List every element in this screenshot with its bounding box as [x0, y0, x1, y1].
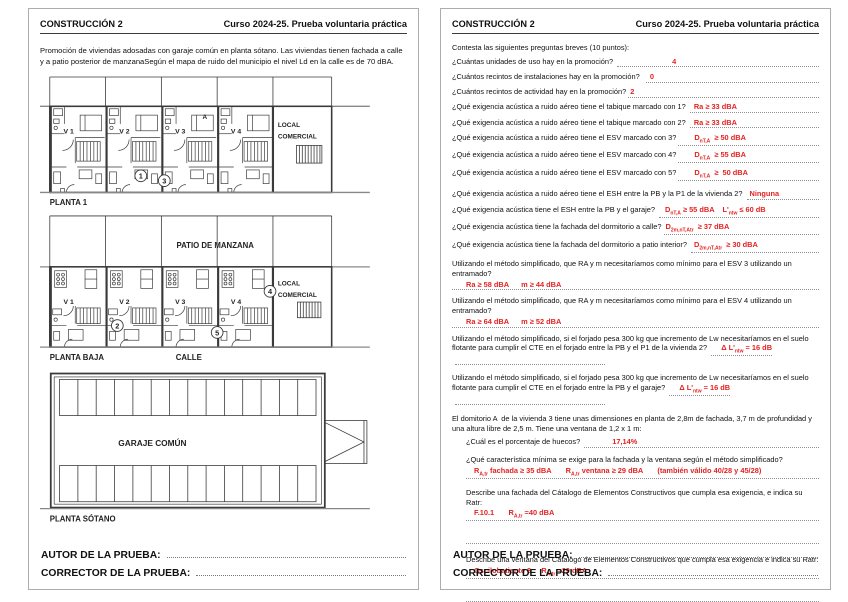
- marker-circle-4: 4: [264, 285, 276, 297]
- local-label-p1: LOCAL: [278, 122, 300, 129]
- dotted-answer-line: Ninguna: [747, 189, 819, 200]
- exam-page-plans: CONSTRUCCIÓN 2 Curso 2024-25. Prueba vol…: [28, 8, 419, 590]
- dotted-answer-line: RA,tr fachada ≥ 35 dBA RA,tr ventana ≥ 2…: [466, 466, 819, 479]
- marker-circle-1: 1: [135, 170, 147, 182]
- dotted-answer-line: Ra ≥ 33 dBA: [690, 102, 819, 113]
- page-header: CONSTRUCCIÓN 2 Curso 2024-25. Prueba vol…: [40, 19, 407, 34]
- corrector-row: CORRECTOR DE LA PRUEBA:: [41, 566, 406, 579]
- autor-row: AUTOR DE LA PRUEBA:: [453, 548, 818, 561]
- dotted-answer-line: Ra ≥ 64 dBA m ≥ 52 dBA: [452, 317, 819, 328]
- course-title: CONSTRUCCIÓN 2: [40, 19, 123, 29]
- dotted-answer-line: 0: [646, 72, 819, 83]
- question-item: Utilizando el método simplificado, que R…: [452, 259, 819, 290]
- unit-label-v2-pb: V 2: [119, 299, 129, 306]
- answer-text: Ra ≥ 58 dBA m ≥ 44 dBA: [452, 280, 561, 290]
- dotted-answer-line: 2: [628, 87, 819, 98]
- room-a-label: A: [202, 114, 207, 121]
- questions-list: ¿Cuántas unidades de uso hay en la promo…: [452, 57, 819, 602]
- question-text: Describe una fachada del Cátalogo de Ele…: [466, 488, 805, 507]
- question-text: ¿Qué exigencia acústica a ruido aéreo ti…: [452, 118, 688, 128]
- answer-text: Δ L'ntw = 16 dB: [669, 383, 730, 396]
- autor-blank-line: [167, 548, 406, 558]
- signature-footer-left: AUTOR DE LA PRUEBA: CORRECTOR DE LA PRUE…: [41, 543, 406, 579]
- question-text: ¿Cuántas unidades de uso hay en la promo…: [452, 57, 615, 67]
- svg-text:3: 3: [162, 176, 166, 185]
- question-text: ¿Qué exigencia acústica tiene el ESH ent…: [452, 205, 657, 215]
- question-item: ¿Qué exigencia acústica tiene la fachada…: [452, 240, 819, 253]
- question-item: ¿Qué exigencia acústica a ruido aéreo ti…: [452, 189, 819, 200]
- unit-label-v1-pb: V 1: [64, 299, 74, 306]
- dotted-answer-line: DnT,A ≥ 55 dBA L'ntw ≤ 60 dB: [659, 205, 819, 218]
- question-item: Describe una fachada del Cátalogo de Ele…: [466, 488, 819, 545]
- question-text: ¿Cuál es el porcentaje de huecos?: [466, 437, 582, 447]
- dotted-answer-line: [455, 356, 605, 365]
- unit-label-v3-pb: V 3: [175, 299, 185, 306]
- floor-plan-planta-baja: [40, 216, 370, 347]
- question-item: ¿Qué exigencia acústica a ruido aéreo ti…: [452, 150, 819, 163]
- question-text: ¿Qué exigencia acústica tiene la fachada…: [452, 222, 662, 232]
- plan-label-planta-baja: PLANTA BAJA: [50, 353, 105, 362]
- dotted-answer-line: D2m,nT,Atr ≥ 37 dBA: [664, 222, 819, 235]
- answer-text: Ra ≥ 33 dBA: [690, 102, 737, 112]
- question-item: ¿Cuál es el porcentaje de huecos? 17,14%: [466, 437, 819, 448]
- question-item: ¿Cuántos recintos de instalaciones hay e…: [452, 72, 819, 83]
- unit-label-v1-p1: V 1: [64, 129, 74, 136]
- dotted-answer-line: Ra ≥ 58 dBA m ≥ 44 dBA: [452, 280, 819, 291]
- question-text: Utilizando el método simplificado, que R…: [452, 296, 794, 315]
- question-item: ¿Qué exigencia acústica tiene el ESH ent…: [452, 205, 819, 218]
- answer-text: 4: [617, 57, 676, 67]
- plan-label-planta1: PLANTA 1: [50, 198, 88, 207]
- stairs-hatch-local1: [296, 145, 321, 163]
- intro-paragraph: Promoción de viviendas adosadas con gara…: [40, 46, 407, 67]
- unit-label-v2-p1: V 2: [119, 129, 129, 136]
- marker-circle-2: 2: [111, 320, 123, 332]
- calle-label: CALLE: [176, 353, 202, 362]
- unit-label-v3-p1: V 3: [175, 129, 185, 136]
- floor-plans-drawing: V 1 V 2 V 3 V 4 A LOCAL COMERCIAL 1 3 PL…: [40, 75, 409, 535]
- instructions-line: Contesta las siguientes preguntas breves…: [452, 43, 819, 52]
- autor-row: AUTOR DE LA PRUEBA:: [41, 548, 406, 561]
- dotted-answer-line: DnT,A ≥ 50 dBA: [678, 168, 819, 181]
- answer-text: DnT,A ≥ 50 dBA: [678, 168, 748, 180]
- question-text: Utilizando el método simplificado, que R…: [452, 259, 794, 278]
- parking-stalls-bottom: [60, 465, 316, 501]
- unit-label-v4-p1: V 4: [231, 129, 241, 136]
- question-item: ¿Qué exigencia acústica a ruido aéreo ti…: [452, 102, 819, 113]
- autor-label: AUTOR DE LA PRUEBA:: [453, 550, 573, 561]
- question-text: ¿Qué exigencia acústica a ruido aéreo ti…: [452, 102, 688, 112]
- dotted-answer-line: 17,14%: [584, 437, 819, 448]
- stairs-hatch-local-baja: [297, 302, 320, 318]
- parking-stalls-top: [60, 379, 316, 415]
- question-item: ¿Qué característica mínima se exige para…: [466, 455, 819, 479]
- answer-text: 17,14%: [584, 437, 637, 447]
- svg-text:1: 1: [139, 172, 143, 181]
- question-text: ¿Cuántos recintos de instalaciones hay e…: [452, 72, 644, 82]
- question-text: ¿Qué exigencia acústica tiene la fachada…: [452, 240, 689, 250]
- question-text: ¿Qué exigencia acústica a ruido aéreo ti…: [452, 133, 676, 143]
- answer-text: D2m,nT,Atr ≥ 37 dBA: [664, 222, 730, 234]
- answer-text: D2m,nT,Atr ≥ 30 dBA: [691, 240, 758, 252]
- answer-text: Ninguna: [747, 189, 780, 199]
- svg-text:2: 2: [115, 321, 119, 330]
- question-item: Utilizando el método simplificado, si el…: [452, 334, 819, 369]
- answer-text: RA,tr fachada ≥ 35 dBA RA,tr ventana ≥ 2…: [466, 466, 761, 478]
- question-item: Utilizando el método simplificado, si el…: [452, 373, 819, 408]
- dotted-answer-line: D2m,nT,Atr ≥ 30 dBA: [691, 240, 819, 253]
- question-item: ¿Qué exigencia acústica a ruido aéreo ti…: [452, 118, 819, 129]
- corrector-blank-line: [196, 566, 406, 576]
- garage-label: GARAJE COMÚN: [118, 437, 186, 448]
- question-item: El domitorio A de la vivienda 3 tiene un…: [452, 414, 819, 434]
- marker-circle-3: 3: [158, 175, 170, 187]
- floor-plan-planta1: [40, 77, 370, 192]
- patio-label: PATIO DE MANZANA: [176, 241, 254, 250]
- answer-text: F.10.1 RA,tr =40 dBA: [466, 508, 554, 520]
- dotted-answer-line: Ra ≥ 33 dBA: [690, 118, 819, 129]
- question-text: ¿Cuántos recintos de actividad hay en la…: [452, 87, 626, 97]
- dotted-blank-line: [466, 592, 819, 602]
- course-term: Curso 2024-25. Prueba voluntaria práctic…: [224, 19, 407, 29]
- course-term: Curso 2024-25. Prueba voluntaria práctic…: [636, 19, 819, 29]
- question-text: ¿Qué exigencia acústica a ruido aéreo ti…: [452, 189, 745, 199]
- corrector-label: CORRECTOR DE LA PRUEBA:: [41, 568, 190, 579]
- answer-text: Δ L'ntw = 16 dB: [711, 343, 772, 356]
- dotted-answer-line: DnT,A ≥ 50 dBA: [678, 133, 819, 146]
- unit-label-v4-pb: V 4: [231, 299, 241, 306]
- answer-text: DnT,A ≥ 50 dBA: [678, 133, 746, 145]
- answer-text: DnT,A ≥ 55 dBA: [678, 150, 746, 162]
- autor-blank-line: [579, 548, 818, 558]
- page-header: CONSTRUCCIÓN 2 Curso 2024-25. Prueba vol…: [452, 19, 819, 34]
- dotted-answer-line: [455, 396, 605, 405]
- answer-text: 2: [628, 87, 634, 97]
- dotted-answer-line: 4: [617, 57, 819, 68]
- question-text: Utilizando el método simplificado, si el…: [452, 373, 811, 392]
- question-item: ¿Cuántas unidades de uso hay en la promo…: [452, 57, 819, 68]
- floor-plan-sotano: [40, 373, 370, 508]
- dotted-answer-line: F.10.1 RA,tr =40 dBA: [466, 508, 819, 521]
- question-text: ¿Qué exigencia acústica a ruido aéreo ti…: [452, 150, 676, 160]
- dotted-answer-line: DnT,A ≥ 55 dBA: [678, 150, 819, 163]
- question-item: ¿Qué exigencia acústica a ruido aéreo ti…: [452, 133, 819, 146]
- marker-circle-5: 5: [211, 326, 223, 338]
- corrector-label: CORRECTOR DE LA PRUEBA:: [453, 568, 602, 579]
- exam-page-questions: CONSTRUCCIÓN 2 Curso 2024-25. Prueba vol…: [440, 8, 831, 590]
- question-item: ¿Qué exigencia acústica a ruido aéreo ti…: [452, 168, 819, 181]
- signature-footer-right: AUTOR DE LA PRUEBA: CORRECTOR DE LA PRUE…: [453, 543, 818, 579]
- answer-text: Ra ≥ 33 dBA: [690, 118, 737, 128]
- local-label-pb: LOCAL: [278, 280, 300, 287]
- local-label2-pb: COMERCIAL: [278, 292, 317, 299]
- question-item: ¿Cuántos recintos de actividad hay en la…: [452, 87, 819, 98]
- answer-text: 0: [646, 72, 654, 82]
- answer-text: Ra ≥ 64 dBA m ≥ 52 dBA: [452, 317, 561, 327]
- autor-label: AUTOR DE LA PRUEBA:: [41, 550, 161, 561]
- svg-text:5: 5: [215, 328, 219, 337]
- corrector-blank-line: [608, 566, 818, 576]
- question-text: ¿Qué exigencia acústica a ruido aéreo ti…: [452, 168, 676, 178]
- local-label2-p1: COMERCIAL: [278, 133, 317, 140]
- question-text: El domitorio A de la vivienda 3 tiene un…: [452, 414, 814, 433]
- question-text: ¿Qué característica mínima se exige para…: [466, 455, 783, 464]
- question-item: Utilizando el método simplificado, que R…: [452, 296, 819, 327]
- plan-label-sotano: PLANTA SÓTANO: [50, 514, 116, 523]
- question-item: ¿Qué exigencia acústica tiene la fachada…: [452, 222, 819, 235]
- corrector-row: CORRECTOR DE LA PRUEBA:: [453, 566, 818, 579]
- course-title: CONSTRUCCIÓN 2: [452, 19, 535, 29]
- garage-ramp: [325, 420, 367, 463]
- answer-text: DnT,A ≥ 55 dBA L'ntw ≤ 60 dB: [659, 205, 766, 217]
